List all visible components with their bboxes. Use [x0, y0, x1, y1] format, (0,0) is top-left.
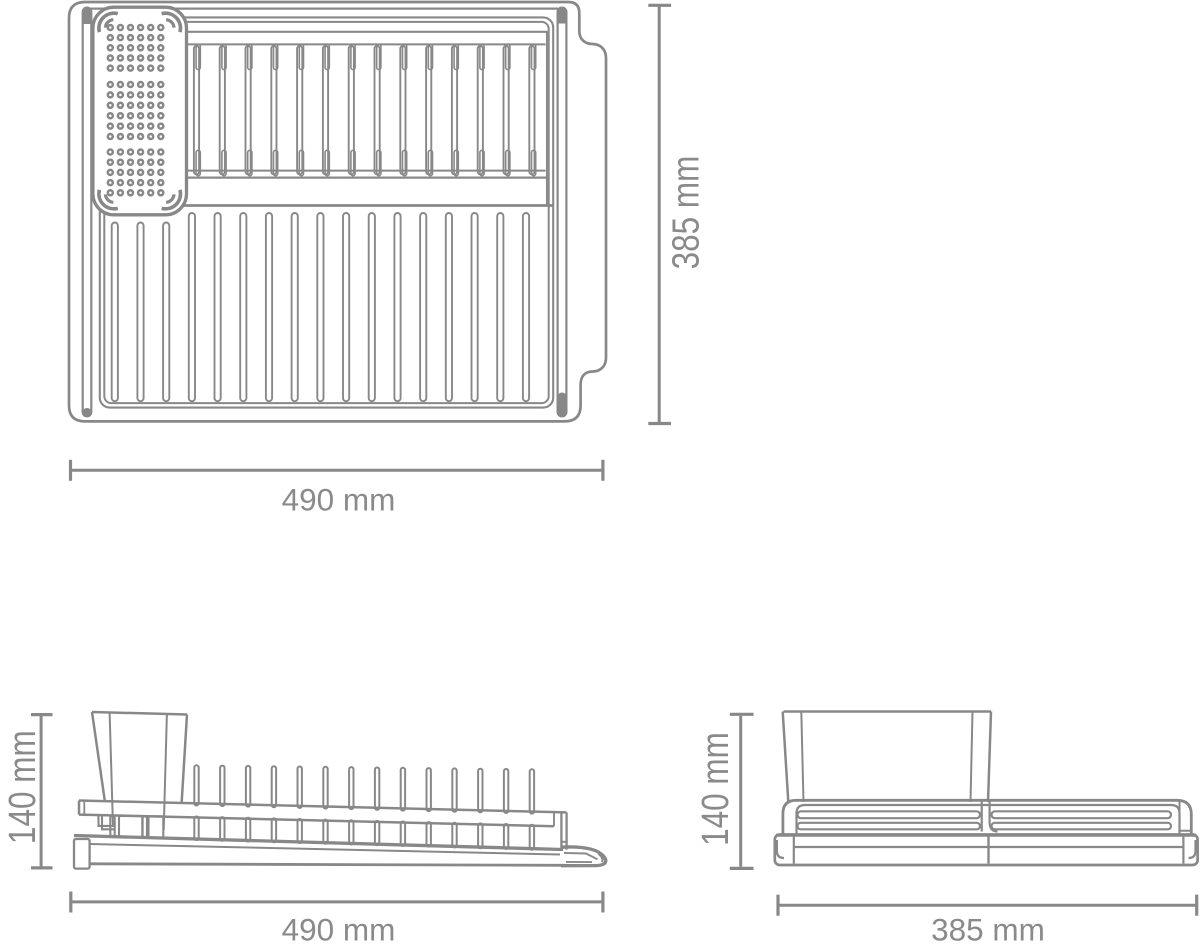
- svg-text:140 mm: 140 mm: [695, 732, 736, 846]
- svg-text:490 mm: 490 mm: [282, 912, 396, 945]
- svg-text:385 mm: 385 mm: [666, 156, 707, 270]
- svg-text:490 mm: 490 mm: [282, 482, 396, 518]
- svg-text:385 mm: 385 mm: [931, 912, 1045, 945]
- svg-text:140 mm: 140 mm: [2, 730, 43, 844]
